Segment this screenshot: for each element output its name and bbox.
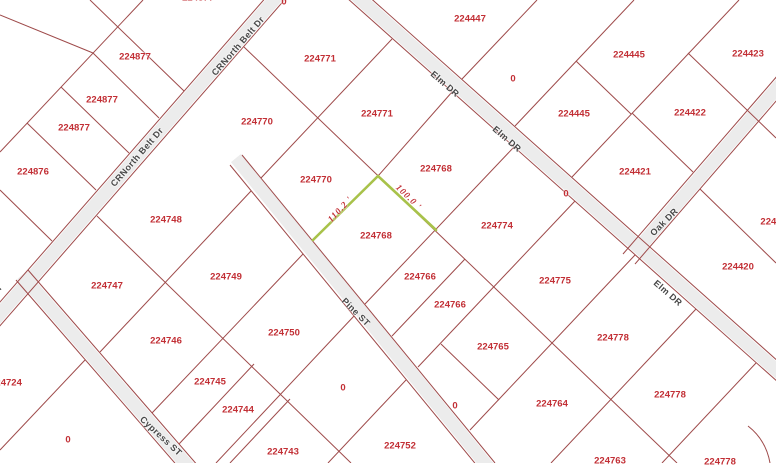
map-canvas[interactable]: 2248772248772248772248772248762247712247…	[0, 0, 776, 463]
selected-parcel-highlight[interactable]	[313, 176, 436, 240]
parcel-map-linework	[0, 0, 776, 463]
road-bands	[0, 0, 776, 463]
